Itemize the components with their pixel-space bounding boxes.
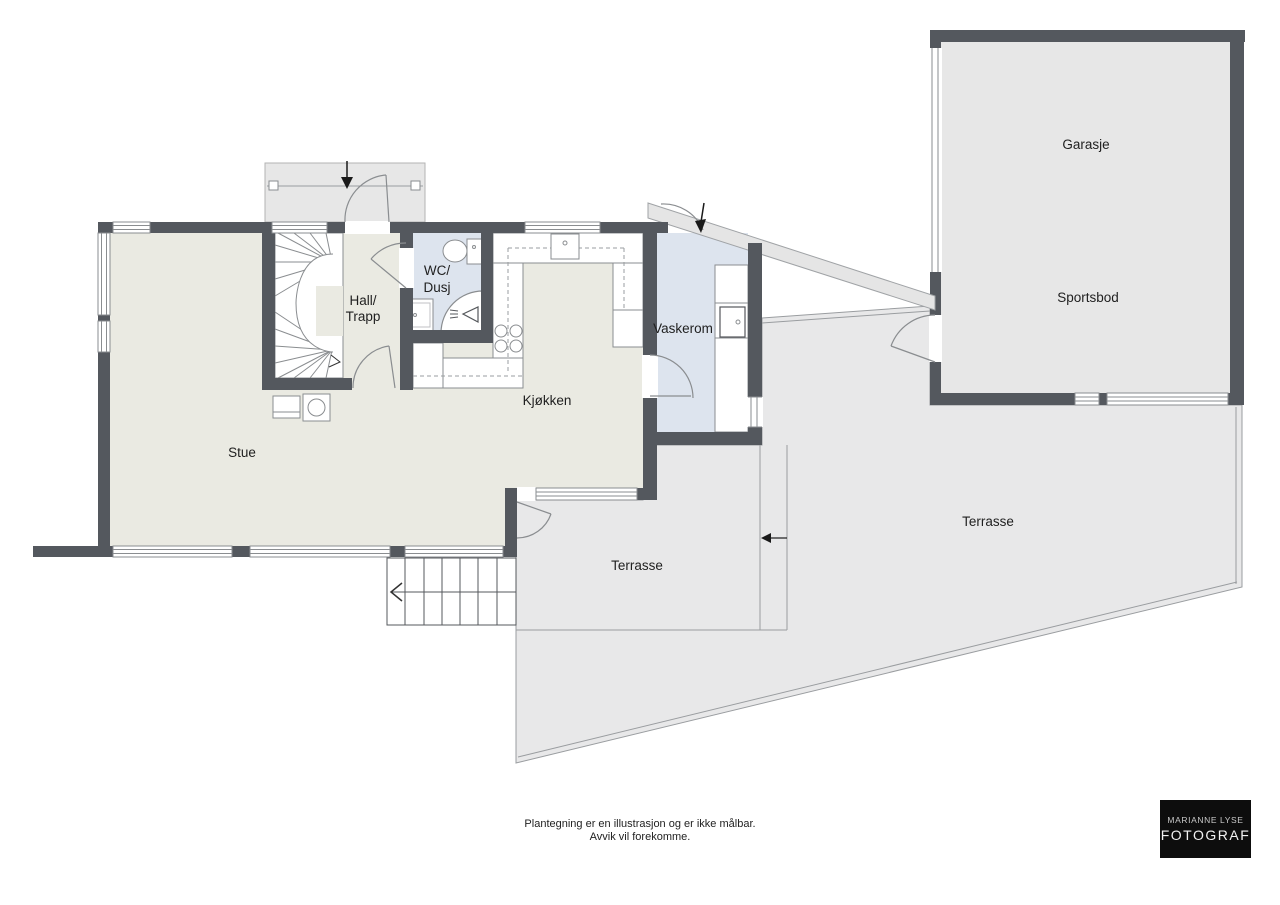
window [1107, 393, 1228, 405]
disclaimer-line2: Avvik vil forekomme. [0, 831, 1280, 844]
room-label-hall-trapp-line1: Hall/ [349, 293, 376, 308]
wall [481, 222, 493, 343]
window [1075, 393, 1099, 405]
wall [505, 488, 517, 557]
room-label-terrasse-large: Terrasse [962, 514, 1014, 529]
window [536, 488, 637, 500]
wall [400, 330, 490, 343]
room-label-kjokken: Kjøkken [523, 393, 572, 408]
laundry-counter [715, 265, 748, 432]
porch-post [411, 181, 420, 190]
room-label-garasje: Garasje [1062, 137, 1109, 152]
window-gap [747, 397, 763, 427]
window [405, 546, 503, 557]
window [98, 321, 110, 352]
door-gap [517, 487, 536, 501]
room-label-vaskerom: Vaskerom [653, 321, 713, 336]
window [250, 546, 390, 557]
hall-table [273, 396, 300, 418]
room-label-terrasse-small: Terrasse [611, 558, 663, 573]
garage-floor [930, 30, 1244, 405]
kitchen-sink-icon [551, 234, 579, 259]
wall [1230, 30, 1244, 405]
door-gap [399, 248, 414, 288]
garage-door-opening [929, 48, 942, 272]
wall [643, 432, 762, 445]
room-label-stue: Stue [228, 445, 256, 460]
wall [33, 546, 98, 557]
logo-name: MARIANNE LYSE [1167, 815, 1243, 825]
disclaimer: Plantegning er en illustrasjon og er ikk… [0, 818, 1280, 844]
floor-plan-page: Stue Hall/ Trapp WC/ Dusj Kjøkken Vasker… [0, 0, 1280, 905]
wall [262, 378, 352, 390]
outdoor-stairs-icon [387, 558, 516, 625]
logo-title: FOTOGRAF [1161, 827, 1251, 843]
window [113, 222, 150, 233]
window [98, 233, 110, 315]
wall [930, 30, 1245, 42]
door-gap [642, 355, 658, 398]
window [525, 222, 600, 233]
photographer-logo: MARIANNE LYSE FOTOGRAF [1160, 800, 1251, 858]
floor-plan-drawing: Stue Hall/ Trapp WC/ Dusj Kjøkken Vasker… [0, 0, 1280, 905]
wall [400, 222, 413, 390]
window [272, 222, 327, 233]
room-label-hall-trapp-line2: Trapp [346, 309, 381, 324]
stove-oven-icon [303, 394, 330, 421]
stair-landing-notch [316, 286, 343, 336]
room-label-wc-dusj-line2: Dusj [423, 280, 450, 295]
door-gap [929, 315, 942, 362]
disclaimer-line1: Plantegning er en illustrasjon og er ikk… [0, 818, 1280, 831]
door-gap [345, 221, 390, 234]
winder-staircase-icon [275, 233, 343, 378]
room-label-sportsbod: Sportsbod [1057, 290, 1119, 305]
room-label-wc-dusj-line1: WC/ [424, 263, 450, 278]
window [113, 546, 232, 557]
laundry-sink-icon [720, 307, 745, 337]
wall [262, 222, 275, 390]
garage-building [891, 30, 1245, 405]
porch-post [269, 181, 278, 190]
